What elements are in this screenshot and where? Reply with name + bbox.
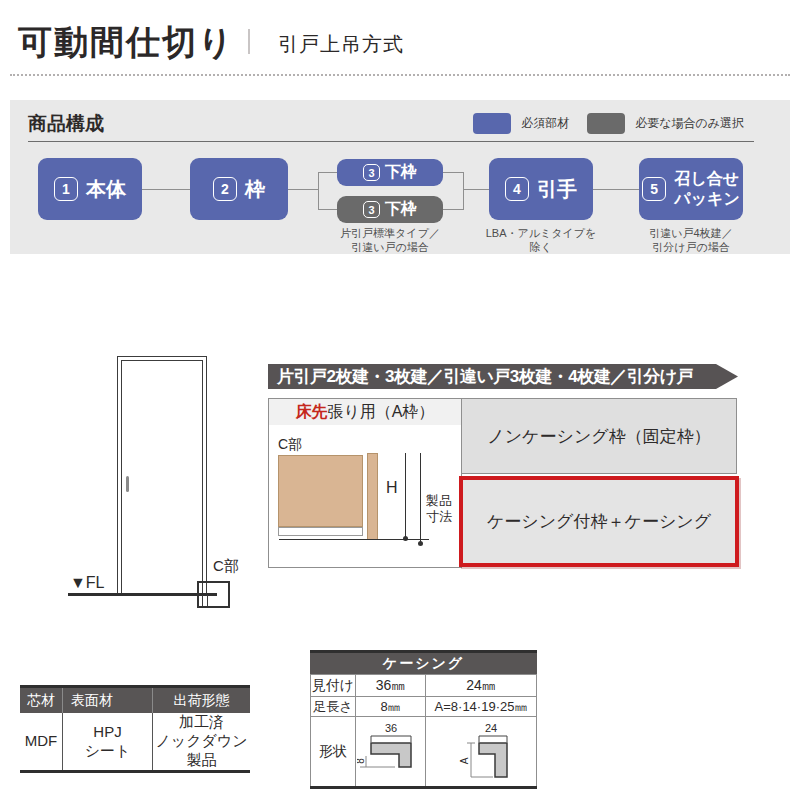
connector-line — [593, 189, 639, 190]
row-label: 足長さ — [310, 697, 355, 716]
header-core: 芯材 — [20, 688, 62, 713]
catalog-page: 可動間仕切り 引戸上吊方式 商品構成 必須部材 必要な場合のみ選択 1 本体 2 — [0, 0, 800, 800]
c-detail-callout-label: C部 — [213, 557, 239, 576]
option-noncasing-frame: ノンケーシング枠（固定枠） — [461, 398, 737, 474]
height-dimension-label: H — [386, 479, 398, 497]
product-dimension-label: 製品 寸法 — [426, 493, 452, 526]
composition-title: 商品構成 — [28, 111, 104, 137]
c-section-label: C部 — [278, 436, 302, 454]
row-label: 見付け — [310, 675, 355, 696]
svg-text:A: A — [459, 757, 470, 764]
floor-line — [68, 593, 217, 596]
frame-table-left-header: 床先張り用（A枠） — [268, 398, 462, 426]
flow-note: LBA・アルミタイプを 除く — [466, 226, 616, 255]
composition-legend: 必須部材 必要な場合のみ選択 — [473, 113, 752, 134]
header-shipping: 出荷形態 — [152, 688, 250, 713]
legend-required-swatch — [473, 113, 511, 134]
flow-box-body: 1 本体 — [38, 158, 142, 220]
facewidth-36: 36㎜ — [355, 675, 425, 696]
number-badge: 5 — [642, 177, 666, 201]
flow-note: 引違い戸4枚建／ 引分け戸の場合 — [616, 226, 766, 255]
page-title: 可動間仕切り — [18, 20, 235, 66]
flow-box-frame: 2 枠 — [190, 158, 288, 220]
flow-box-label: 引手 — [537, 176, 577, 203]
shape-24-profile-drawing: 24 A — [441, 721, 521, 783]
connector-line — [142, 189, 190, 190]
material-table-data-row: MDF HPJ シート 加工済 ノックダウン 製品 — [20, 713, 250, 770]
c-detail-callout-box — [197, 581, 230, 608]
casing-table: ケーシング 見付け 36㎜ 24㎜ 足長さ 8㎜ A=8·14·19·25㎜ 形… — [310, 650, 537, 789]
connector-line — [443, 209, 463, 210]
connector-line — [463, 172, 464, 210]
composition-panel: 商品構成 必須部材 必要な場合のみ選択 1 本体 2 枠 3 下枠 — [10, 100, 790, 254]
floor-first-red-label: 床先 — [295, 402, 327, 423]
flow-box-label: 枠 — [245, 176, 265, 203]
casing-table-title: ケーシング — [310, 653, 537, 674]
flow-box-packing: 5 召し合せ パッキン — [639, 158, 743, 220]
shape-24-cell: 24 A — [425, 717, 537, 786]
door-edge-section — [367, 453, 378, 540]
flow-box-bottom-rail-optional: 3 下枠 — [337, 196, 443, 223]
connector-line — [318, 172, 319, 210]
flow-box-handle: 4 引手 — [489, 158, 593, 220]
connector-line — [318, 209, 337, 210]
floor-first-rest-label: 張り用（A枠） — [327, 402, 434, 423]
row-label: 形状 — [310, 717, 355, 786]
flow-box-label: 下枠 — [385, 162, 417, 183]
svg-text:24: 24 — [485, 722, 497, 734]
flow-box-label: 下枠 — [385, 199, 417, 220]
height-dimension-line — [405, 453, 406, 539]
header-surface: 表面材 — [62, 688, 152, 713]
c-section-diagram: C部 H 製品 寸法 — [268, 425, 462, 568]
number-badge: 4 — [505, 177, 529, 201]
number-badge: 2 — [213, 177, 237, 201]
panel-rule — [28, 141, 754, 142]
flow-box-label: 召し合せ パッキン — [674, 169, 740, 209]
title-divider — [248, 29, 250, 54]
casing-row-shape: 形状 36 8 24 — [310, 716, 537, 786]
dimension-dot — [418, 541, 423, 546]
facewidth-24: 24㎜ — [425, 675, 537, 696]
material-table: 芯材 表面材 出荷形態 MDF HPJ シート 加工済 ノックダウン 製品 — [20, 685, 250, 773]
flow-box-label: 本体 — [86, 176, 126, 203]
page-subtitle: 引戸上吊方式 — [278, 31, 404, 58]
door-types-banner: 片引戸2枚建・3枚建／引違い戸3枚建・4枚建／引分け戸 — [268, 364, 738, 389]
number-badge: 3 — [363, 201, 380, 218]
flow-note: 片引戸標準タイプ／ 引違い戸の場合 — [315, 226, 465, 255]
shape-36-cell: 36 8 — [355, 717, 425, 786]
floor-level-label: ▼FL — [70, 574, 105, 592]
shape-36-profile-drawing: 36 8 — [357, 721, 425, 783]
legend-optional-label: 必要な場合のみ選択 — [635, 115, 744, 132]
legend-required-label: 必須部材 — [521, 115, 569, 132]
cell-core: MDF — [20, 713, 62, 770]
wall-section — [278, 455, 363, 527]
bottom-frame-section — [278, 527, 363, 536]
leglength-a: A=8·14·19·25㎜ — [425, 697, 537, 716]
option-casing-frame-highlighted: ケーシング付枠＋ケーシング — [459, 476, 739, 567]
svg-text:8: 8 — [357, 757, 366, 763]
header-dotted-rule — [10, 74, 790, 76]
connector-line — [463, 189, 489, 190]
number-badge: 1 — [54, 177, 78, 201]
connector-line — [288, 189, 318, 190]
flow-box-bottom-rail-required: 3 下枠 — [337, 159, 443, 186]
door-handle — [126, 476, 129, 492]
diagram-floor-line — [279, 539, 429, 540]
connector-line — [443, 172, 463, 173]
leglength-8: 8㎜ — [355, 697, 425, 716]
material-table-header-row: 芯材 表面材 出荷形態 — [20, 688, 250, 713]
casing-row-facewidth: 見付け 36㎜ 24㎜ — [310, 674, 537, 696]
cell-surface: HPJ シート — [62, 713, 152, 770]
door-frame-inner-line — [121, 360, 203, 595]
connector-line — [318, 172, 337, 173]
legend-optional-swatch — [587, 113, 625, 134]
cell-shipping: 加工済 ノックダウン 製品 — [152, 713, 250, 770]
svg-text:36: 36 — [384, 722, 396, 734]
number-badge: 3 — [363, 164, 380, 181]
casing-row-leglength: 足長さ 8㎜ A=8·14·19·25㎜ — [310, 696, 537, 716]
product-dimension-line — [420, 453, 421, 544]
